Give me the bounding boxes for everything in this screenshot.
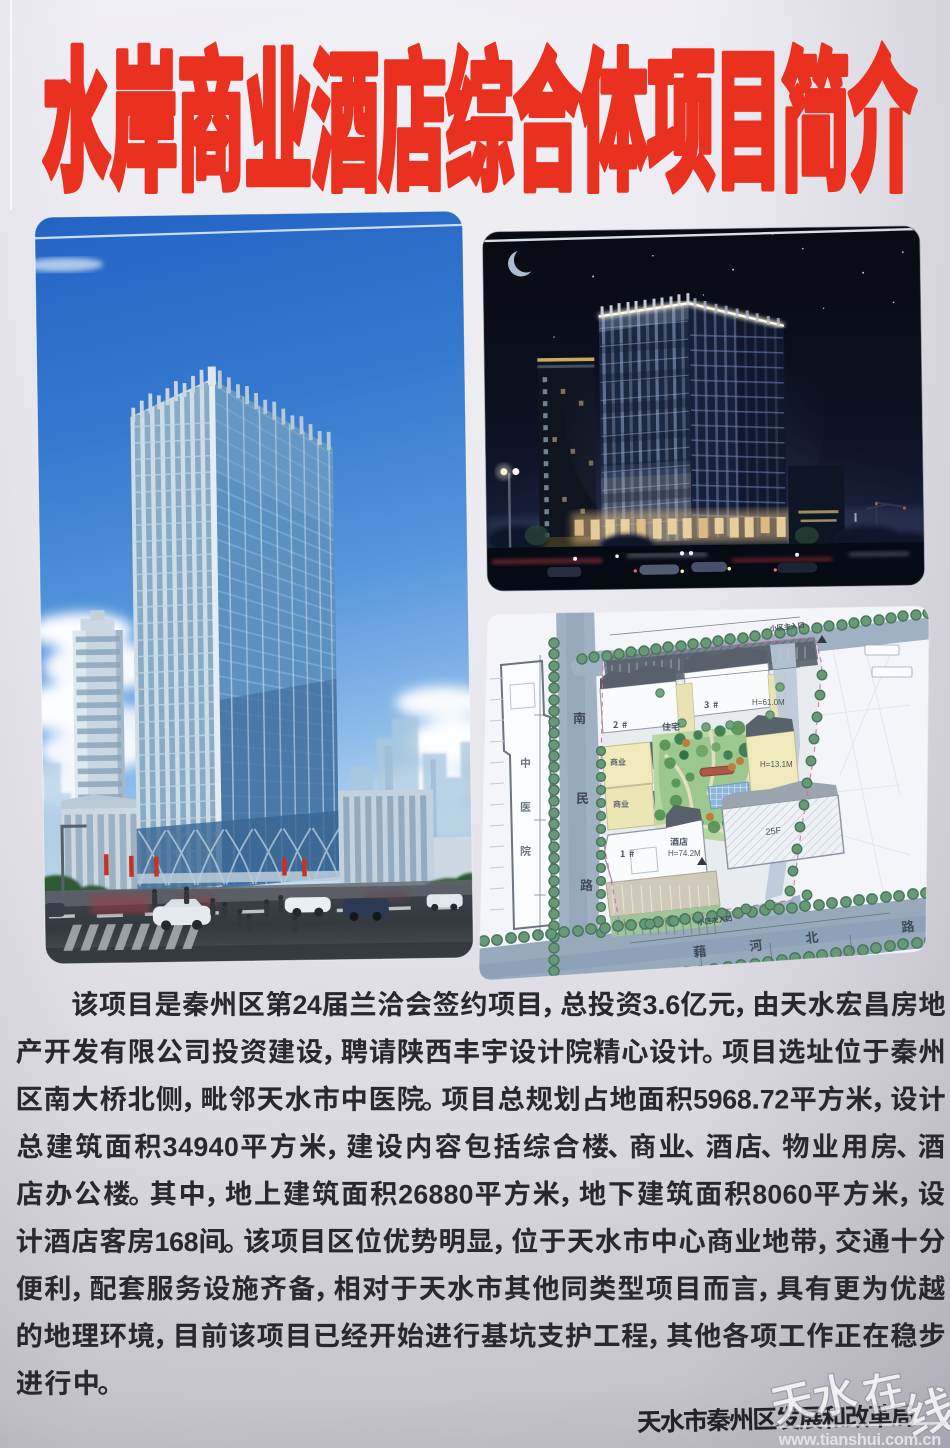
svg-text:1: 1 bbox=[155, 1227, 170, 1257]
svg-text:6: 6 bbox=[722, 1085, 737, 1115]
svg-text:0: 0 bbox=[798, 1179, 813, 1209]
svg-text:H=74.2M: H=74.2M bbox=[668, 849, 701, 858]
svg-text:6: 6 bbox=[665, 990, 680, 1020]
svg-text:25F: 25F bbox=[765, 825, 782, 837]
svg-text:3: 3 bbox=[643, 990, 658, 1020]
svg-text:H=61.0M: H=61.0M bbox=[752, 698, 785, 707]
svg-text:8: 8 bbox=[444, 1179, 459, 1209]
svg-text:8: 8 bbox=[428, 1179, 443, 1209]
svg-text:www.tianshui.com.cn: www.tianshui.com.cn bbox=[778, 1431, 942, 1448]
svg-text:2: 2 bbox=[398, 1179, 413, 1209]
svg-text:3: 3 bbox=[163, 1132, 178, 1162]
svg-text:H=13.1M: H=13.1M bbox=[760, 760, 793, 769]
svg-text:4: 4 bbox=[209, 1132, 224, 1162]
svg-text:8: 8 bbox=[752, 1179, 767, 1209]
svg-text:6: 6 bbox=[782, 1179, 797, 1209]
svg-text:0: 0 bbox=[224, 1132, 239, 1162]
svg-text:9: 9 bbox=[193, 1132, 208, 1162]
svg-text:7: 7 bbox=[760, 1085, 775, 1115]
svg-text:4: 4 bbox=[178, 1132, 193, 1162]
svg-text:2: 2 bbox=[292, 990, 307, 1020]
svg-text:8: 8 bbox=[737, 1085, 752, 1115]
svg-text:5: 5 bbox=[693, 1085, 708, 1115]
svg-text:9: 9 bbox=[708, 1085, 723, 1115]
svg-text:4: 4 bbox=[307, 990, 322, 1020]
svg-text:0: 0 bbox=[459, 1179, 474, 1209]
svg-text:0: 0 bbox=[767, 1179, 782, 1209]
svg-text:2: 2 bbox=[774, 1085, 789, 1115]
svg-text:6: 6 bbox=[413, 1179, 428, 1209]
svg-text:8: 8 bbox=[184, 1227, 199, 1257]
svg-text:6: 6 bbox=[169, 1227, 184, 1257]
